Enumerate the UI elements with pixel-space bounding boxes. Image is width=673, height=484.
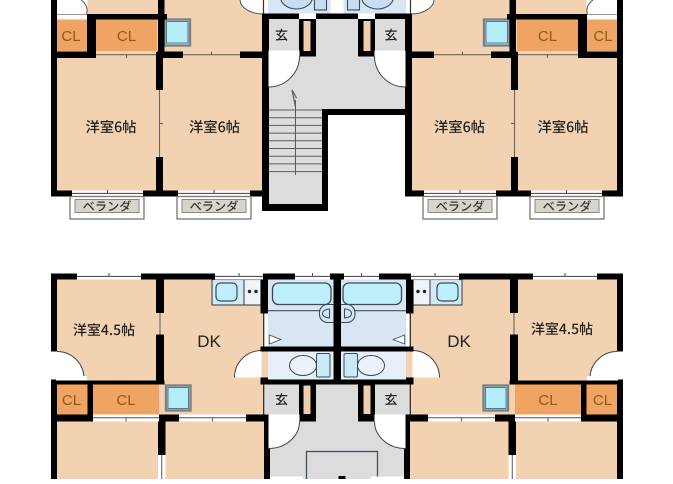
svg-text:CL: CL (61, 28, 80, 45)
svg-text:DK: DK (447, 332, 471, 351)
svg-text:DK: DK (197, 332, 221, 351)
svg-text:CL: CL (593, 28, 612, 45)
svg-text:CL: CL (62, 392, 81, 409)
svg-text:CL: CL (538, 392, 557, 409)
svg-text:CL: CL (538, 28, 557, 45)
svg-text:CL: CL (116, 392, 135, 409)
svg-text:CL: CL (117, 28, 136, 45)
svg-text:CL: CL (593, 392, 612, 409)
